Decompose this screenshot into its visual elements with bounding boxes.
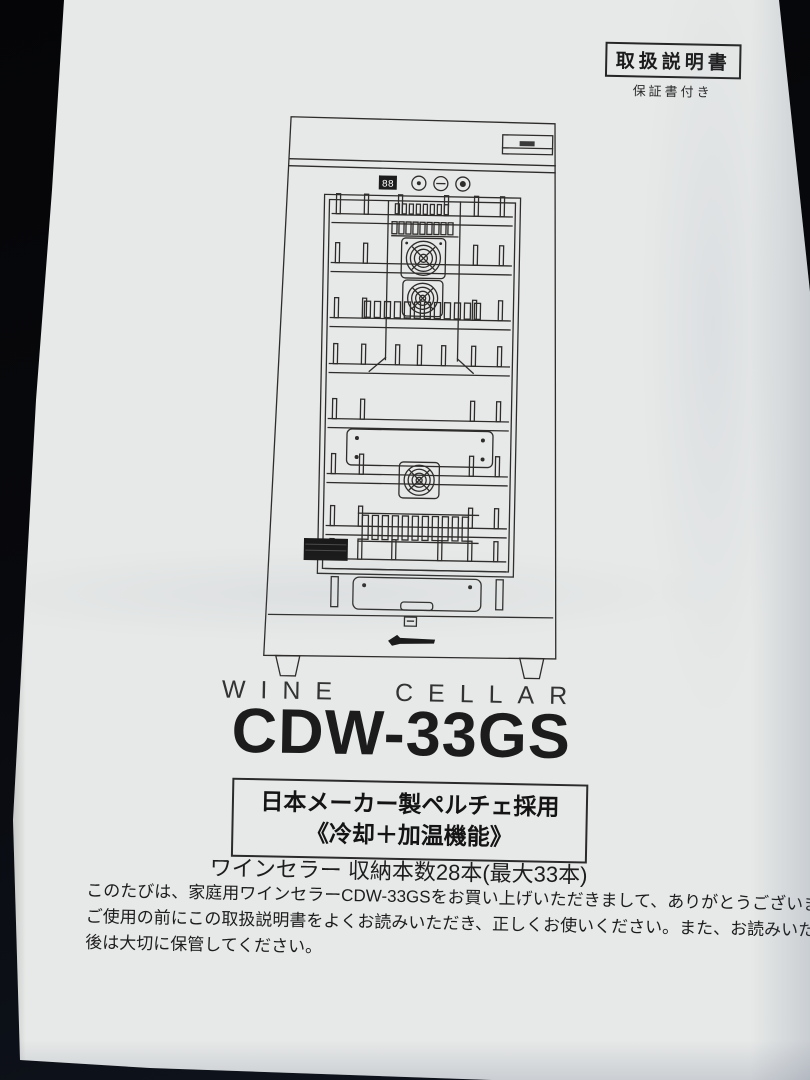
foot-right [519, 658, 543, 678]
wine-cellar-illustration: 88 [259, 109, 570, 685]
intro-paragraph: このたびは、家庭用ワインセラーCDW-33GSをお買い上げいただきまして、ありが… [85, 878, 758, 969]
control-panel: 88 [379, 175, 470, 192]
feature-line-1: 日本メーカー製ペルチェ採用 [238, 786, 583, 824]
control-button-power-icon [456, 177, 470, 191]
photo-background: 取扱説明書 保証書付き [0, 0, 810, 1080]
brand-logo [388, 635, 435, 647]
fan-icon [402, 280, 443, 317]
bottom-access-panel [331, 577, 504, 612]
warranty-badge: 取扱説明書 保証書付き [603, 42, 744, 102]
control-button-down-icon [434, 176, 448, 190]
dark-component [304, 538, 348, 561]
fan-icon [399, 462, 440, 499]
badge-subtitle: 保証書付き [603, 80, 743, 102]
page-content: 取扱説明書 保証書付き [0, 0, 810, 1080]
bottle-rack-posts [330, 194, 505, 562]
manual-cover-page: 取扱説明書 保証書付き [0, 0, 810, 1080]
temperature-display-value: 88 [382, 179, 394, 190]
model-title: CDW-33GS [0, 690, 807, 778]
foot-left [275, 656, 299, 676]
control-button-up-icon [412, 176, 426, 190]
cabinet-base [268, 612, 552, 628]
door-handle [502, 135, 552, 155]
feature-line-2: 《冷却＋加温機能》 [237, 817, 582, 855]
badge-title: 取扱説明書 [605, 42, 741, 80]
